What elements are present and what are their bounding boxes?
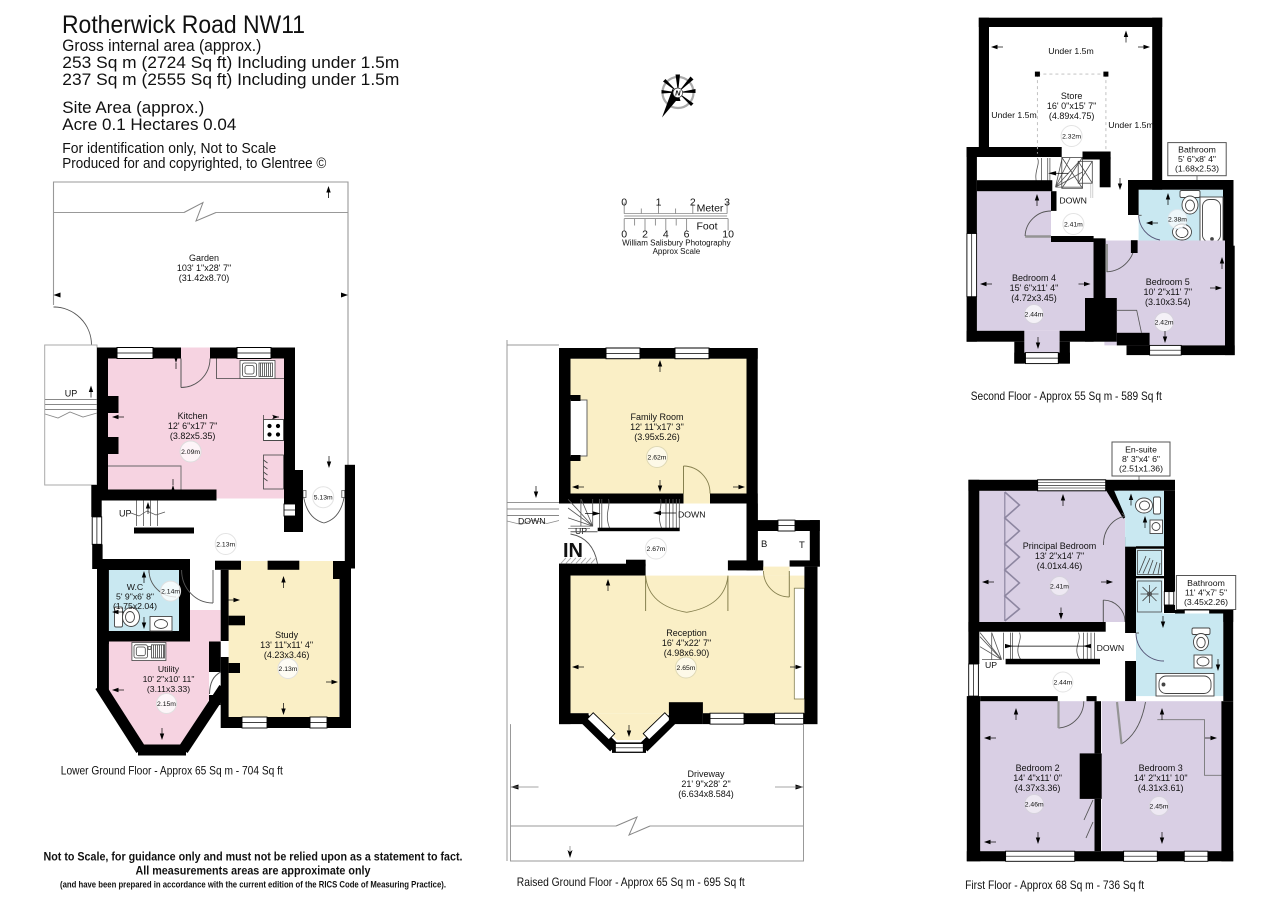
svg-text:Not to Scale, for guidance onl: Not to Scale, for guidance only and must…: [44, 851, 463, 864]
svg-text:(4.37x3.36): (4.37x3.36): [1015, 783, 1061, 793]
svg-text:For identification only, Not t: For identification only, Not to Scale: [62, 141, 276, 157]
svg-text:N: N: [675, 89, 681, 98]
svg-text:UP: UP: [985, 660, 997, 670]
svg-text:(6.634x8.584): (6.634x8.584): [678, 789, 734, 799]
svg-text:2.44m: 2.44m: [1025, 312, 1044, 319]
svg-text:(3.82x5.35): (3.82x5.35): [170, 431, 216, 441]
svg-text:2.38m: 2.38m: [1168, 217, 1187, 224]
svg-text:Acre 0.1 Hectares 0.04: Acre 0.1 Hectares 0.04: [62, 116, 236, 134]
svg-text:2.67m: 2.67m: [647, 546, 666, 553]
svg-text:Kitchen: Kitchen: [178, 411, 208, 421]
svg-text:14' 2"x11' 10": 14' 2"x11' 10": [1134, 773, 1188, 783]
svg-text:First Floor - Approx 68 Sq m -: First Floor - Approx 68 Sq m - 736 Sq ft: [965, 878, 1145, 892]
svg-text:5' 6"x8' 4": 5' 6"x8' 4": [1178, 154, 1216, 164]
svg-text:2.15m: 2.15m: [157, 701, 176, 708]
svg-text:(3.11x3.33): (3.11x3.33): [147, 684, 190, 694]
svg-text:1: 1: [656, 197, 662, 209]
svg-text:(4.89x4.75): (4.89x4.75): [1049, 111, 1095, 121]
svg-text:2.09m: 2.09m: [181, 449, 200, 456]
svg-text:2.65m: 2.65m: [677, 665, 696, 672]
svg-text:(31.42x8.70): (31.42x8.70): [179, 273, 230, 283]
svg-text:(3.10x3.54): (3.10x3.54): [1145, 297, 1191, 307]
svg-text:Garden: Garden: [189, 253, 219, 263]
svg-text:Study: Study: [275, 630, 299, 640]
svg-text:DOWN: DOWN: [678, 510, 706, 520]
svg-text:Driveway: Driveway: [687, 769, 725, 779]
svg-text:3: 3: [724, 197, 730, 209]
svg-text:Produced for and copyrighted,: Produced for and copyrighted, to Glentre…: [62, 156, 326, 172]
svg-text:14' 4"x11' 0": 14' 4"x11' 0": [1013, 773, 1062, 783]
svg-text:15' 6"x11' 4": 15' 6"x11' 4": [1010, 283, 1059, 293]
svg-text:2.42m: 2.42m: [1155, 320, 1174, 327]
svg-text:Principal Bedroom: Principal Bedroom: [1023, 541, 1097, 551]
svg-text:(and have been prepared in acc: (and have been prepared in accordance wi…: [60, 880, 446, 890]
svg-text:Reception: Reception: [666, 628, 707, 638]
svg-text:Under 1.5m: Under 1.5m: [991, 110, 1036, 120]
svg-text:Second Floor - Approx 55 Sq m: Second Floor - Approx 55 Sq m - 589 Sq f…: [971, 389, 1163, 403]
svg-text:10' 2"x11' 7": 10' 2"x11' 7": [1143, 287, 1192, 297]
svg-text:(1.75x2.04): (1.75x2.04): [113, 601, 157, 611]
svg-text:12' 11"x17' 3": 12' 11"x17' 3": [630, 422, 684, 432]
svg-text:W.C: W.C: [127, 582, 143, 592]
svg-text:16' 0"x15' 7": 16' 0"x15' 7": [1047, 101, 1096, 111]
svg-text:DOWN: DOWN: [518, 516, 546, 526]
svg-text:Under 1.5m: Under 1.5m: [1108, 120, 1153, 130]
svg-text:DOWN: DOWN: [1059, 196, 1087, 206]
svg-text:2.13m: 2.13m: [279, 666, 298, 673]
svg-text:2.45m: 2.45m: [1150, 804, 1169, 811]
svg-text:(4.98x6.90): (4.98x6.90): [664, 648, 710, 658]
svg-text:2.62m: 2.62m: [648, 455, 667, 462]
svg-text:11' 4"x7' 5": 11' 4"x7' 5": [1185, 588, 1227, 598]
svg-text:8' 3"x4' 6": 8' 3"x4' 6": [1122, 454, 1160, 464]
svg-text:13' 11"x11' 4": 13' 11"x11' 4": [260, 640, 313, 650]
svg-text:2.41m: 2.41m: [1064, 222, 1083, 229]
svg-text:(1.68x2.53): (1.68x2.53): [1175, 164, 1219, 174]
svg-text:Bedroom 3: Bedroom 3: [1139, 763, 1183, 773]
svg-text:(4.01x4.46): (4.01x4.46): [1037, 561, 1083, 571]
svg-text:(2.51x1.36): (2.51x1.36): [1119, 464, 1163, 474]
svg-text:Store: Store: [1061, 91, 1083, 101]
svg-text:(3.95x5.26): (3.95x5.26): [634, 432, 680, 442]
svg-text:Lower Ground Floor - Approx 65: Lower Ground Floor - Approx 65 Sq m - 70…: [61, 764, 284, 778]
svg-text:2.44m: 2.44m: [1053, 680, 1072, 687]
svg-text:All measurements areas are app: All measurements areas are approximate o…: [136, 865, 372, 878]
svg-text:Family Room: Family Room: [630, 412, 683, 422]
svg-text:2.46m: 2.46m: [1025, 802, 1044, 809]
svg-text:(4.72x3.45): (4.72x3.45): [1011, 293, 1057, 303]
svg-text:En-suite: En-suite: [1125, 445, 1157, 455]
svg-text:Utility: Utility: [158, 664, 180, 674]
svg-text:Bathroom: Bathroom: [1178, 145, 1216, 155]
svg-text:Bedroom 5: Bedroom 5: [1146, 277, 1190, 287]
svg-text:UP: UP: [575, 526, 587, 536]
svg-text:Raised Ground Floor - Approx 6: Raised Ground Floor - Approx 65 Sq m - 6…: [517, 875, 746, 889]
svg-text:103' 1"x28' 7": 103' 1"x28' 7": [177, 263, 231, 273]
svg-text:21' 9"x28' 2": 21' 9"x28' 2": [681, 779, 730, 789]
svg-text:DOWN: DOWN: [1097, 643, 1125, 653]
svg-text:Bathroom: Bathroom: [1187, 578, 1225, 588]
svg-text:13' 2"x14' 7": 13' 2"x14' 7": [1035, 551, 1084, 561]
svg-text:10' 2"x10' 11": 10' 2"x10' 11": [143, 674, 195, 684]
svg-text:(4.31x3.61): (4.31x3.61): [1138, 783, 1184, 793]
svg-text:Gross internal area (approx.): Gross internal area (approx.): [62, 37, 261, 55]
svg-text:Bedroom 2: Bedroom 2: [1016, 763, 1060, 773]
svg-text:2: 2: [690, 197, 696, 209]
svg-text:5.13m: 5.13m: [314, 495, 333, 502]
svg-text:Bedroom 4: Bedroom 4: [1012, 273, 1056, 283]
svg-text:T: T: [799, 540, 805, 551]
svg-text:2.32m: 2.32m: [1062, 134, 1081, 141]
svg-text:UP: UP: [65, 389, 78, 399]
svg-text:Meter: Meter: [697, 203, 724, 215]
svg-text:Rotherwick Road NW11: Rotherwick Road NW11: [62, 11, 305, 39]
svg-text:Foot: Foot: [696, 221, 717, 233]
svg-text:Approx Scale: Approx Scale: [653, 247, 701, 256]
svg-text:253 Sq m (2724 Sq ft) Includin: 253 Sq m (2724 Sq ft) Including under 1.…: [62, 54, 399, 72]
svg-text:0: 0: [621, 197, 627, 209]
svg-text:B: B: [761, 539, 767, 550]
svg-text:Site Area (approx.): Site Area (approx.): [62, 99, 204, 117]
svg-text:2.13m: 2.13m: [216, 542, 235, 549]
svg-text:(3.45x2.26): (3.45x2.26): [1184, 597, 1228, 607]
svg-text:2.41m: 2.41m: [1050, 584, 1069, 591]
svg-text:12' 6"x17' 7": 12' 6"x17' 7": [168, 421, 217, 431]
svg-text:16' 4"x22' 7": 16' 4"x22' 7": [662, 638, 711, 648]
svg-text:Under 1.5m: Under 1.5m: [1048, 46, 1093, 56]
svg-text:5' 9"x6' 8": 5' 9"x6' 8": [116, 592, 154, 602]
svg-text:2.14m: 2.14m: [161, 589, 180, 596]
svg-text:237 Sq m (2555 Sq ft) Includin: 237 Sq m (2555 Sq ft) Including under 1.…: [62, 71, 399, 89]
svg-text:UP: UP: [119, 509, 132, 519]
